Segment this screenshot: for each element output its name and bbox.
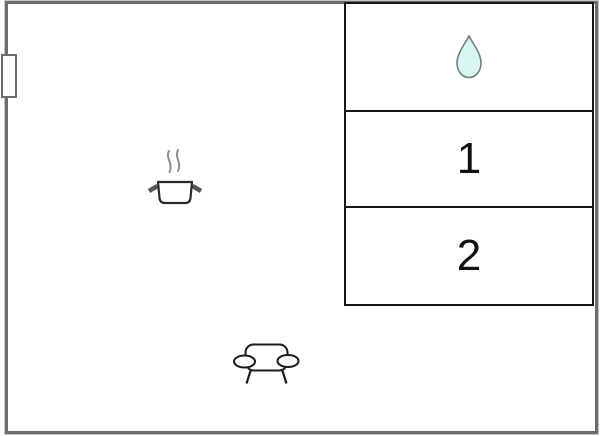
sofa-armrest-right [278,355,299,367]
water-drop-icon [454,34,484,80]
rooms-section: 1 2 [344,2,594,306]
sofa-armrest-left [234,356,255,368]
room-bathroom [346,4,592,112]
steam-line-right [177,150,179,171]
room-bedroom-2: 2 [346,208,592,304]
steam-line-left [168,151,171,172]
sofa-icon [220,330,320,400]
floor-plan-canvas: 1 2 [0,0,600,436]
pot-handle-right [193,186,202,191]
door-marker [1,54,17,98]
pot-handle-left [149,186,158,191]
room-bedroom-2-label: 2 [457,234,481,278]
pot-body [158,182,192,203]
sofa-leg-left [247,371,251,384]
cooking-pot-steam-icon [145,145,205,205]
water-drop-shape [457,36,481,78]
room-bedroom-1-label: 1 [457,137,481,181]
sofa-leg-right [283,371,287,384]
room-bedroom-1: 1 [346,112,592,208]
kitchen-area [145,145,205,205]
living-room-area [220,330,320,400]
